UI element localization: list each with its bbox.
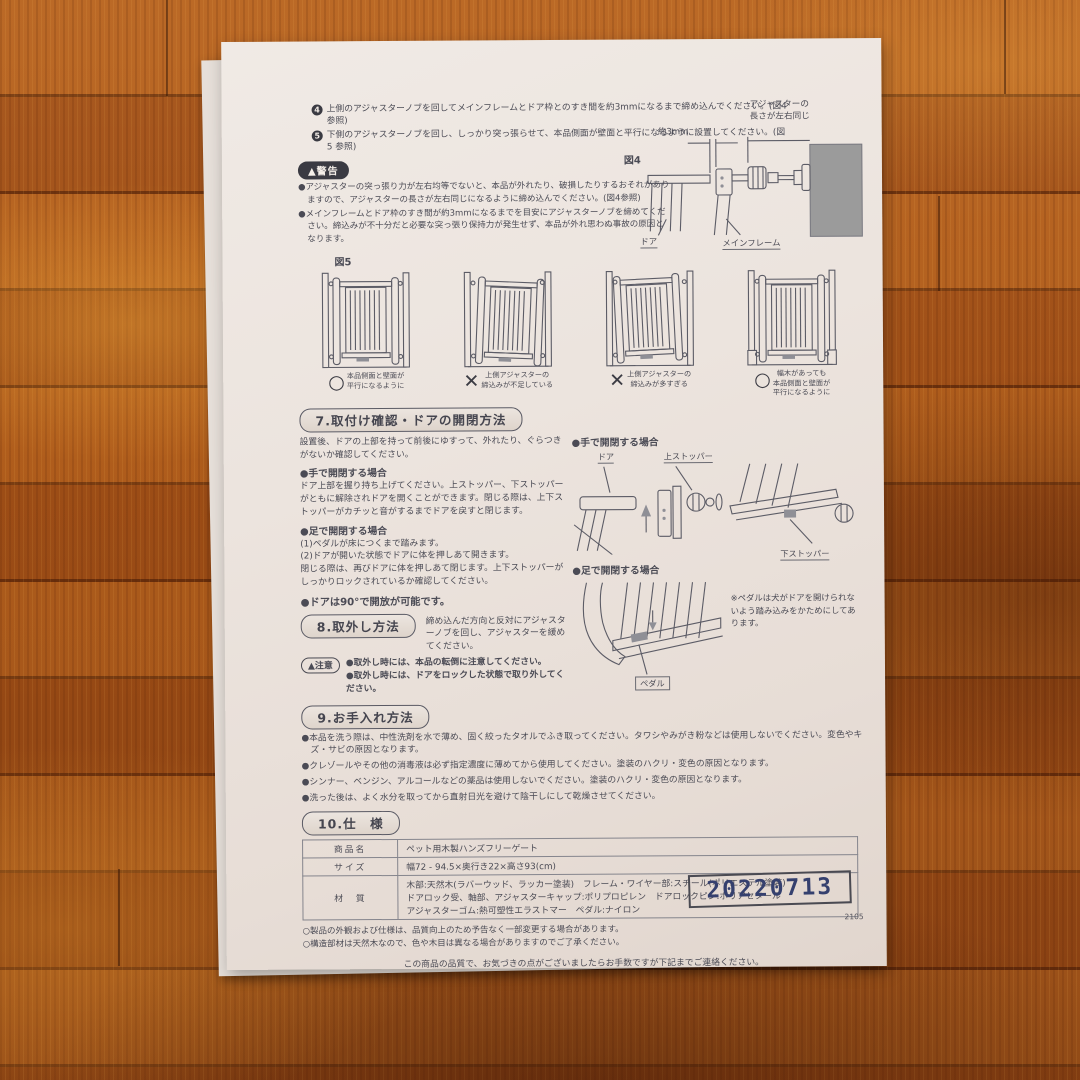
care-bullet: ●洗った後は、よく水分を取ってから直射日光を避けて陰干しにして乾燥させてください… bbox=[302, 789, 864, 805]
step-text: 下側のアジャスターノブを回し、しっかり突っ張らせて、本品側面が壁面と平行になるよ… bbox=[327, 126, 790, 153]
figure5-example-overtight: ✕ 上側アジャスターの 締込みが多すぎる bbox=[583, 268, 718, 399]
caution-box: ▲注意 ●取外し時には、本品の転倒に注意してください。 ●取外し時には、ドアをロ… bbox=[301, 656, 569, 697]
top-stopper-label: 上ストッパー bbox=[664, 450, 713, 463]
section8: 8.取外し方法 締め込んだ方向と反対にアジャスターノブを回し、アジャスターを緩め… bbox=[301, 613, 569, 655]
warning-bullet: ●アジャスターの突っ張り力が左右均等でないと、本品が外れたり、破損したりするおそ… bbox=[298, 180, 670, 207]
section9-header: 9.お手入れ方法 bbox=[301, 704, 430, 729]
caution-bullet: ●取外し時には、ドアをロックした状態で取り外してください。 bbox=[346, 669, 569, 697]
manual-page: アジャスターの 長さが左右同じ 約3mm 図4 bbox=[221, 38, 887, 970]
step-number-badge: 5 bbox=[312, 130, 323, 141]
caution-bullet: ●取外し時には、本品の転倒に注意してください。 bbox=[346, 656, 569, 671]
figure5-label: 図5 bbox=[334, 250, 860, 268]
figure5-caption: 上側アジャスターの 締込みが多すぎる bbox=[627, 369, 691, 389]
section8-header: 8.取外し方法 bbox=[301, 614, 416, 639]
warning-badge: ▲警告 bbox=[298, 161, 349, 179]
wood-plank-joint bbox=[166, 0, 168, 96]
caution-badge: ▲注意 bbox=[301, 657, 340, 673]
figure5-example-skirting-ok: ○ 幅木があっても 本品側面と壁面が 平行になるように bbox=[725, 267, 860, 398]
care-bullet: ●シンナー、ベンジン、アルコールなどの薬品は使用しないでください。塗装のハクリ・… bbox=[302, 773, 864, 789]
bottom-stopper-label: 下ストッパー bbox=[780, 547, 829, 560]
figure5-caption: 幅木があっても 本品側面と壁面が 平行になるように bbox=[773, 368, 831, 398]
spec-key: サイズ bbox=[303, 858, 398, 877]
section10-header: 10.仕 様 bbox=[302, 811, 400, 836]
footer-note: ○構造部材は天然木なので、色や木目は異なる場合がありますのでご了承ください。 bbox=[303, 935, 865, 951]
figure5-caption: 本品側面と壁面が 平行になるように bbox=[347, 371, 405, 391]
door-90-note: ●ドアは90°で開放が可能です。 bbox=[301, 592, 569, 609]
door-label: ドア bbox=[598, 451, 614, 464]
gate-diagram bbox=[462, 269, 555, 370]
hand-open-diagram bbox=[572, 462, 725, 555]
hand-open-text: ドア上部を握り持ち上げてください。上ストッパー、下ストッパーがともに解除されドア… bbox=[300, 479, 568, 519]
figure5-example-ok: ○ 本品側面と壁面が 平行になるように bbox=[299, 270, 434, 401]
figure5-example-loose: ✕ 上側アジャスターの 締込みが不足している bbox=[441, 269, 576, 400]
gate-diagram bbox=[320, 270, 413, 371]
install-step-5: 5 下側のアジャスターノブを回し、しっかり突っ張らせて、本品側面が壁面と平行にな… bbox=[312, 126, 790, 154]
section7-header: 7.取付け確認・ドアの開閉方法 bbox=[299, 407, 522, 432]
foot-open-line: 閉じる際は、再びドアに体を押しあて閉じます。上下ストッパーがしっかりロックされて… bbox=[300, 562, 568, 589]
pedal-label: ペダル bbox=[635, 676, 670, 690]
spec-key: 材 質 bbox=[303, 876, 398, 921]
care-bullet: ●クレゾールやその他の消毒液は必ず指定濃度に薄めてから使用してください。塗装のハ… bbox=[302, 757, 864, 773]
gate-diagram bbox=[746, 267, 839, 368]
section9: 9.お手入れ方法 ●本品を洗う際は、中性洗剤を水で薄め、固く絞ったタオルでふき取… bbox=[301, 702, 864, 805]
hand-open-heading: ●手で開閉する場合 bbox=[300, 464, 568, 480]
wood-plank-joint bbox=[1004, 0, 1006, 94]
pedal-note: ※ペダルは犬がドアを開けられないよう踏み込みをかためにしてあります。 bbox=[731, 591, 862, 694]
install-step-4: 4 上側のアジャスターノブを回してメインフレームとドア枠とのすき間を約3mmにな… bbox=[312, 101, 790, 129]
footer-notes: ○製品の外観および仕様は、品質向上のため予告なく一部変更する場合があります。 ○… bbox=[303, 922, 865, 951]
warning-bullet: ●メインフレームとドア枠のすき間が約3mmになるまでを目安にアジャスターノブを締… bbox=[298, 206, 670, 245]
section8-text: 締め込んだ方向と反対にアジャスターノブを回し、アジャスターを緩めてください。 bbox=[426, 615, 569, 654]
hand-open-heading-right: ●手で開閉する場合 bbox=[572, 433, 860, 449]
care-bullet: ●本品を洗う際は、中性洗剤を水で薄め、固く絞ったタオルでふき取ってください。タワ… bbox=[301, 729, 863, 758]
print-code: 2105 bbox=[844, 912, 863, 921]
warning-box: ▲警告 ●アジャスターの突っ張り力が左右均等でないと、本品が外れたり、破損したり… bbox=[298, 158, 671, 246]
ok-mark: ○ bbox=[328, 373, 345, 392]
figure5-block: 図5 bbox=[298, 250, 861, 401]
step-number-badge: 4 bbox=[312, 104, 323, 115]
install-steps: 4 上側のアジャスターノブを回してメインフレームとドア枠とのすき間を約3mmにな… bbox=[298, 100, 860, 154]
spec-key: 商品名 bbox=[303, 840, 398, 859]
wood-plank-joint bbox=[938, 196, 940, 291]
section7: 7.取付け確認・ドアの開閉方法 設置後、ドアの上部を持って前後にゆすって、外れた… bbox=[299, 405, 863, 697]
section7-intro: 設置後、ドアの上部を持って前後にゆすって、外れたり、ぐらつきがないか確認してくだ… bbox=[300, 435, 568, 462]
foot-open-heading-right: ●足で開閉する場合 bbox=[572, 561, 860, 577]
wood-plank-joint bbox=[118, 869, 120, 966]
ng-mark: ✕ bbox=[463, 372, 479, 391]
foot-open-heading: ●足で開閉する場合 bbox=[300, 522, 568, 538]
date-stamp: 20220713 bbox=[688, 870, 852, 908]
ng-mark: ✕ bbox=[609, 371, 625, 390]
ok-mark: ○ bbox=[754, 370, 771, 389]
figure5-caption: 上側アジャスターの 締込みが不足している bbox=[481, 370, 553, 390]
step-text: 上側のアジャスターノブを回してメインフレームとドア枠とのすき間を約3mmになるま… bbox=[327, 101, 790, 128]
gate-diagram bbox=[604, 268, 697, 369]
bottom-stopper-diagram bbox=[728, 461, 857, 546]
